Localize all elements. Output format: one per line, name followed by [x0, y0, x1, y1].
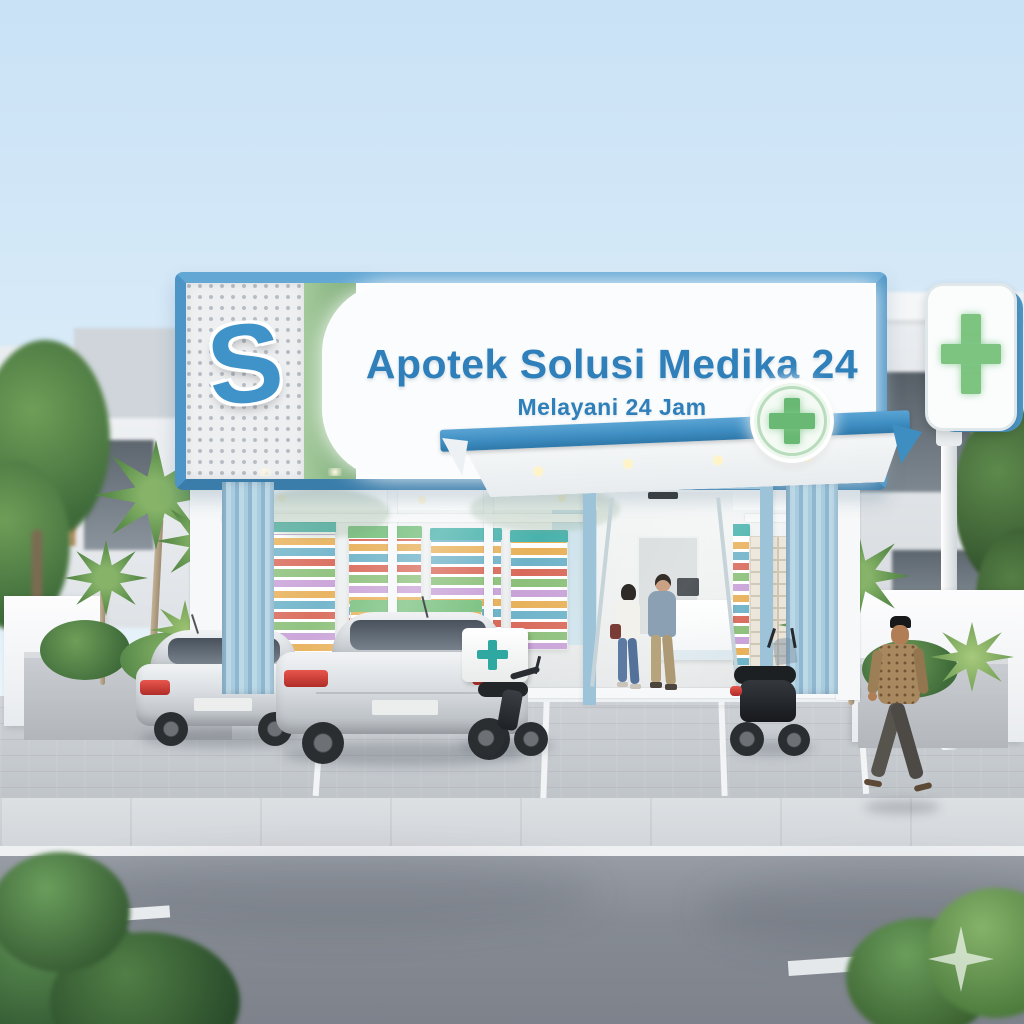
- canopy-left-return: [442, 438, 468, 476]
- person-hand: [868, 692, 877, 701]
- person-torso: [648, 591, 676, 637]
- person-leg: [618, 638, 627, 682]
- louver-fins-left: [222, 482, 274, 694]
- pharmacy-storefront-scene: S Apotek Solusi Medika 24 Melayani 24 Ja…: [0, 0, 1024, 1024]
- delivery-box-cross-icon: [477, 650, 508, 659]
- under-sign-light: [258, 468, 272, 476]
- person-shoe: [630, 684, 641, 689]
- entrance-canopy: [440, 408, 918, 508]
- badge-cross-icon: [769, 413, 815, 429]
- person-shoe: [617, 682, 628, 687]
- sandal: [914, 782, 933, 792]
- sandal: [864, 778, 883, 787]
- person-head: [621, 584, 636, 601]
- customer-woman: [612, 584, 646, 696]
- canopy-green-cross-badge: [750, 379, 834, 463]
- pharmacy-logo: S: [187, 306, 303, 422]
- shrub: [40, 620, 130, 680]
- under-sign-light: [328, 468, 342, 476]
- scooter-body: [740, 680, 796, 722]
- foreground-bush-right: [846, 888, 1024, 1024]
- pylon-sign: [925, 283, 1017, 431]
- person-shoe: [650, 682, 662, 688]
- person-leg: [662, 635, 676, 686]
- shelf-sign: [350, 600, 482, 612]
- logo-panel: S: [186, 283, 304, 479]
- person-leg: [651, 635, 661, 683]
- person-shoe: [665, 684, 677, 690]
- person-head: [891, 625, 909, 645]
- person-leg: [890, 702, 925, 781]
- license-plate: [194, 698, 252, 711]
- customer-man: [644, 574, 682, 696]
- license-plate: [372, 700, 438, 715]
- delivery-scooter: [452, 626, 556, 760]
- handbag: [610, 624, 621, 639]
- canopy-right-return: [892, 424, 922, 464]
- person-leg: [627, 638, 639, 685]
- person-head: [655, 574, 671, 592]
- door-closer-device: [648, 492, 678, 499]
- parked-scooter-black: [726, 628, 818, 762]
- pedestrian-man: [856, 612, 946, 816]
- foreground-bush-left: [0, 852, 260, 1024]
